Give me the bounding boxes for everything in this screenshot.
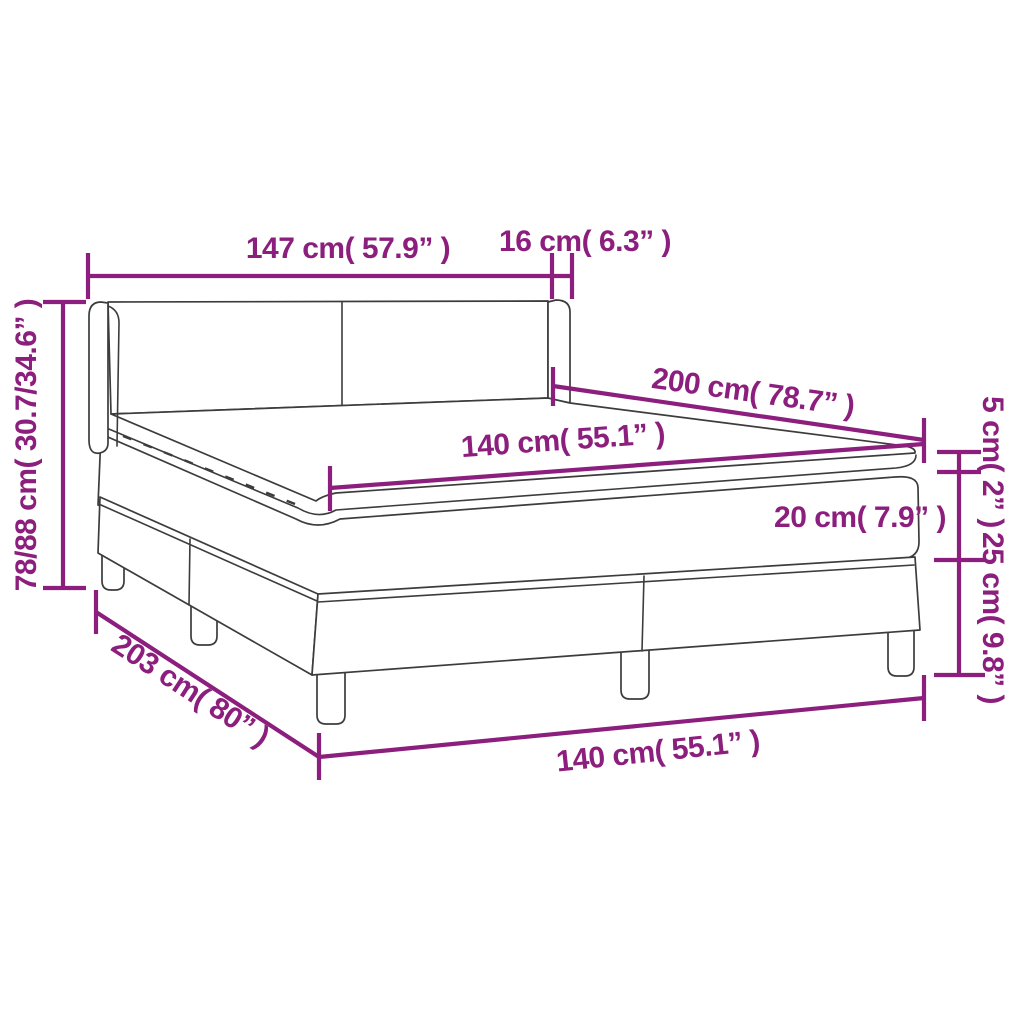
dimension-diagram: 147 cm( 57.9” ) 16 cm( 6.3” ) 78/88 cm( … — [0, 0, 1024, 1024]
dim-total-height-label: 78/88 cm( 30.7/34.6” ) — [10, 299, 44, 592]
dim-mattress-height-label: 20 cm( 7.9” ) — [774, 501, 946, 535]
dim-headboard-width-label: 147 cm( 57.9” ) — [246, 232, 450, 266]
dim-base-height-label: 25 cm( 9.8” ) — [975, 532, 1009, 704]
dim-topper-height-label: 5 cm( 2” ) — [975, 396, 1009, 528]
dim-total-height-line — [43, 302, 86, 588]
headboard — [108, 300, 570, 414]
dim-headboard-depth-label: 16 cm( 6.3” ) — [499, 225, 671, 259]
